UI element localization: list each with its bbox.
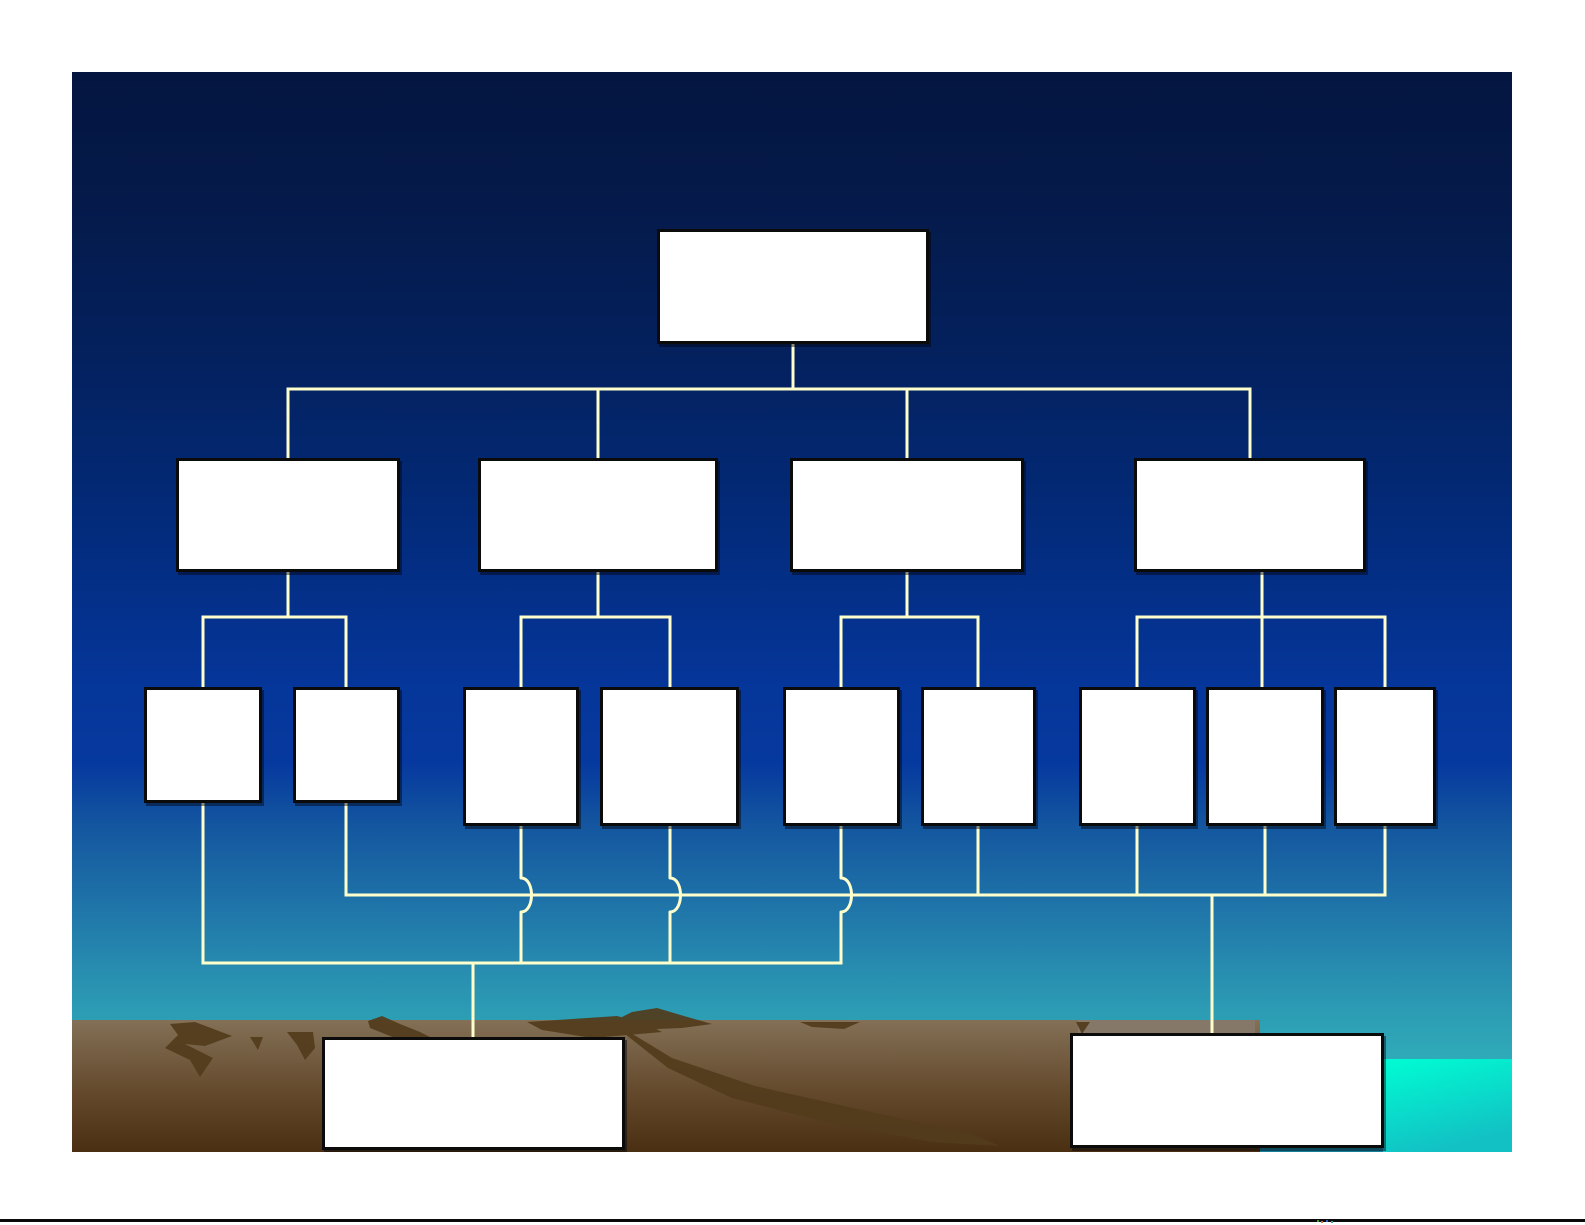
footer-divider-line <box>0 1219 1585 1222</box>
footer-mark <box>1317 1220 1319 1222</box>
org-node-level2-2 <box>478 458 718 572</box>
org-node-level3-4 <box>600 687 739 826</box>
level1-to-level2-connectors <box>288 344 1250 458</box>
org-node-level3-6 <box>921 687 1036 826</box>
org-node-level3-8 <box>1206 687 1324 826</box>
org-node-level2-3 <box>790 458 1024 572</box>
org-node-summary-right <box>1070 1033 1384 1148</box>
slide-canvas <box>72 72 1512 1152</box>
level2-to-level3-connectors <box>203 572 1385 687</box>
org-node-level3-1 <box>144 687 262 803</box>
org-node-level2-1 <box>176 458 400 572</box>
footer-mark <box>1331 1221 1333 1223</box>
org-node-level3-2 <box>293 687 400 803</box>
page <box>0 0 1585 1225</box>
org-node-level3-7 <box>1079 687 1196 826</box>
level3-to-summary-connectors <box>203 803 1385 1037</box>
org-node-level3-5 <box>783 687 900 826</box>
footer-mark <box>1326 1220 1328 1222</box>
org-node-level2-4 <box>1134 458 1366 572</box>
footer-mark <box>1321 1221 1323 1223</box>
org-node-level3-9 <box>1334 687 1436 826</box>
org-node-level3-3 <box>463 687 579 826</box>
org-node-level1 <box>657 229 929 344</box>
org-node-summary-left <box>322 1037 625 1150</box>
